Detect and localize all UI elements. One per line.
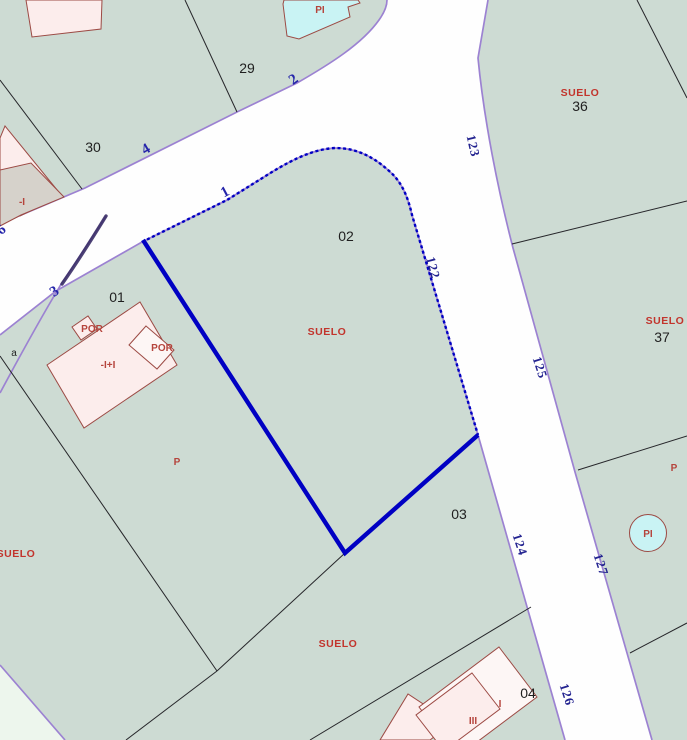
parcel-label-29: 29: [239, 60, 255, 76]
boundary-east-bottom: [630, 623, 687, 653]
building-top-left: [26, 0, 102, 37]
boundary-sw: [126, 671, 217, 740]
parcel-label-37: 37: [654, 329, 670, 345]
boundary-29-30: [185, 0, 237, 112]
boundary-36-ne: [637, 0, 687, 98]
landuse-label-suelo: SUELO: [0, 548, 35, 560]
parcel-label-36: 36: [572, 98, 588, 114]
building-label--i+i: -I+I: [101, 360, 116, 371]
landuse-label-suelo: SUELO: [561, 87, 600, 99]
parcel-label-03: 03: [451, 506, 467, 522]
cadastral-map-viewport[interactable]: 2930010203043637aSUELOSUELOSUELOSUELOSUE…: [0, 0, 687, 740]
parcel-label-04: 04: [520, 685, 536, 701]
building-label-por: POR: [151, 343, 173, 354]
parcel-label-30: 30: [85, 139, 101, 155]
selected-parcel-boundary: [143, 240, 478, 553]
map-canvas[interactable]: 2930010203043637aSUELOSUELOSUELOSUELOSUE…: [0, 0, 687, 740]
building-label-iii: III: [469, 716, 478, 727]
building-label-p: P: [174, 457, 181, 468]
building-label-i: I: [499, 699, 502, 710]
building-label-por: POR: [81, 324, 103, 335]
landuse-label-suelo: SUELO: [646, 315, 685, 327]
landuse-label-suelo: SUELO: [319, 638, 358, 650]
building-label-pi: PI: [315, 5, 325, 16]
boundary-36-37: [512, 201, 687, 244]
building-label-pi: PI: [643, 529, 653, 540]
building-label-p: P: [671, 463, 678, 474]
parcel-label-02: 02: [338, 228, 354, 244]
boundary-03-west: [217, 553, 345, 671]
annotation-label-a: a: [11, 348, 17, 359]
parcel-label-01: 01: [109, 289, 125, 305]
building-label--i: -I: [19, 197, 25, 208]
landuse-label-suelo: SUELO: [308, 326, 347, 338]
